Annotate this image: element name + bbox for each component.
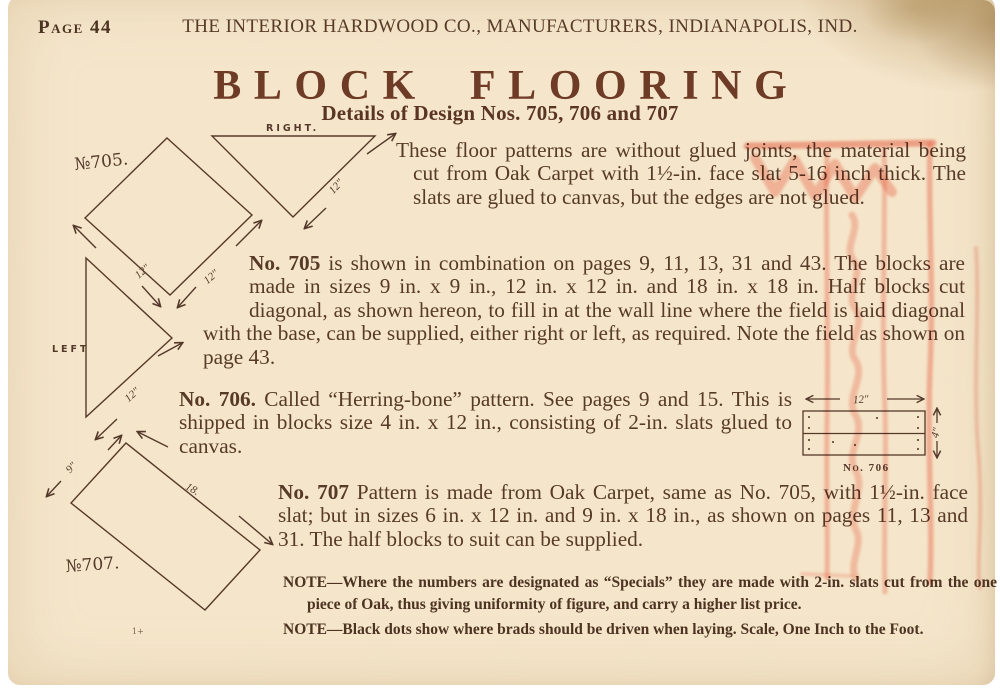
- right-half-dim: 12": [327, 177, 347, 197]
- paragraph-intro: These floor patterns are without glued j…: [396, 139, 966, 209]
- block-705-label: №705.: [73, 149, 129, 175]
- block-706-dim-height: 4": [929, 426, 943, 439]
- block-706-label: No. 706: [843, 462, 890, 474]
- note-specials-text: NOTE—Where the numbers are designated as…: [283, 574, 997, 613]
- paragraph-706: No. 706. Called “Herring-bone” pattern. …: [179, 388, 792, 458]
- right-half-label: RIGHT.: [266, 123, 319, 134]
- note-specials: NOTE—Where the numbers are designated as…: [283, 572, 997, 615]
- design-705-lead: No. 705: [249, 251, 320, 275]
- scanned-catalog-page: Page 44 THE INTERIOR HARDWOOD CO., MANUF…: [0, 0, 1000, 694]
- right-half-block-triangle: RIGHT. 12": [212, 123, 375, 217]
- block-706-diagram: 12" 4" No. 706: [795, 385, 960, 477]
- block-707-dim-short: 9": [64, 460, 80, 476]
- masthead: THE INTERIOR HARDWOOD CO., MANUFACTURERS…: [150, 16, 890, 38]
- paragraph-707-text: Pattern is made from Oak Carpet, same as…: [278, 480, 968, 551]
- page-number: Page 44: [38, 17, 112, 39]
- left-half-block-triangle: LEFT 12": [52, 258, 172, 417]
- block-707-label: №707.: [65, 553, 120, 577]
- note-brads-scale: NOTE—Black dots show where brads should …: [283, 619, 973, 641]
- left-half-label: LEFT: [52, 344, 90, 355]
- note-brads-scale-text: NOTE—Black dots show where brads should …: [283, 621, 923, 638]
- paragraph-intro-text: These floor patterns are without glued j…: [396, 138, 966, 209]
- block-707-rectangle: №707. 9" 18. 1+: [64, 443, 260, 636]
- block-707-dim-long: 18.: [183, 481, 201, 498]
- left-half-dim: 12": [123, 385, 143, 405]
- paragraph-705: No. 705 is shown in combination on pages…: [203, 252, 965, 369]
- paragraph-707: No. 707 Pattern is made from Oak Carpet,…: [278, 481, 968, 551]
- design-707-lead: No. 707: [278, 480, 349, 504]
- block-706-dim-width: 12": [853, 393, 870, 406]
- design-706-lead: No. 706.: [179, 387, 256, 411]
- wrap-spacer: [203, 252, 249, 320]
- print-mark: 1+: [132, 627, 144, 636]
- paragraph-706-text: Called “Herring-bone” pattern. See pages…: [179, 387, 792, 458]
